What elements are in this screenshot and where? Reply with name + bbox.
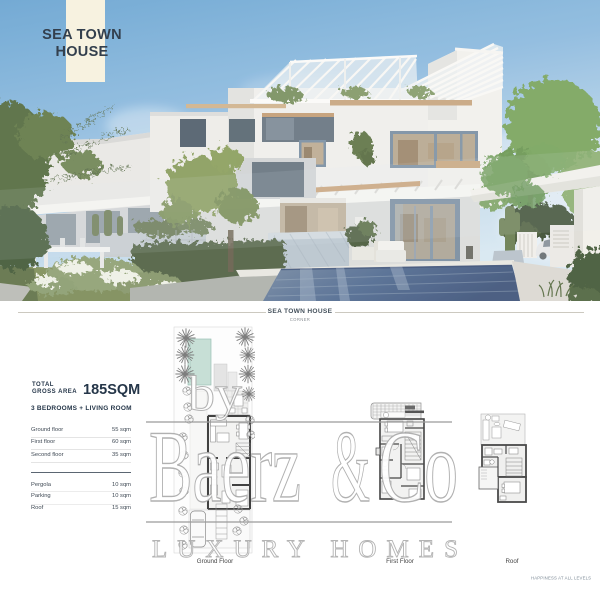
svg-text:SEA TOWN: SEA TOWN	[42, 27, 122, 43]
svg-text:HOUSE: HOUSE	[55, 44, 108, 60]
